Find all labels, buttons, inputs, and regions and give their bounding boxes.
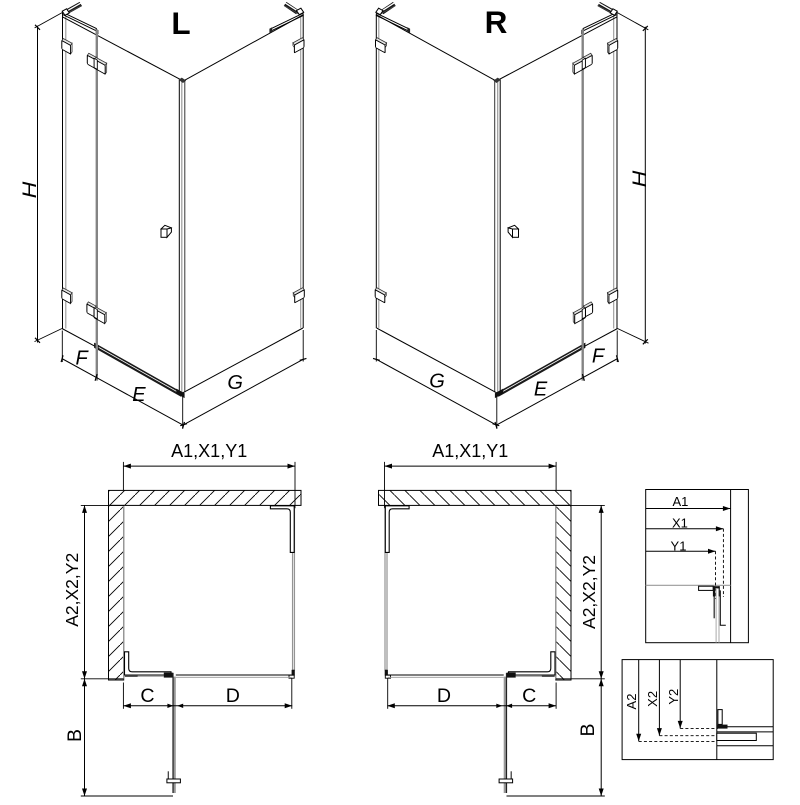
svg-text:B: B	[577, 723, 599, 736]
svg-text:A1,X1,Y1: A1,X1,Y1	[171, 441, 247, 461]
svg-text:L: L	[171, 5, 190, 41]
svg-text:D: D	[437, 685, 451, 707]
svg-text:X2: X2	[645, 691, 660, 707]
svg-text:A2,X2,Y2: A2,X2,Y2	[579, 555, 599, 629]
svg-text:A2,X2,Y2: A2,X2,Y2	[62, 553, 82, 627]
svg-text:A1: A1	[672, 494, 688, 509]
svg-text:R: R	[485, 4, 508, 40]
svg-text:B: B	[64, 729, 86, 742]
svg-text:X1: X1	[672, 516, 688, 531]
svg-text:G: G	[227, 372, 243, 394]
svg-text:G: G	[429, 371, 445, 393]
svg-text:A1,X1,Y1: A1,X1,Y1	[432, 441, 508, 461]
svg-text:Y1: Y1	[671, 538, 687, 553]
svg-text:F: F	[75, 347, 89, 369]
svg-text:E: E	[132, 384, 146, 406]
svg-text:C: C	[522, 685, 536, 707]
svg-text:D: D	[226, 685, 240, 707]
svg-text:E: E	[534, 379, 548, 401]
svg-text:F: F	[592, 346, 606, 368]
svg-text:Y2: Y2	[666, 689, 681, 705]
svg-text:C: C	[140, 685, 154, 707]
svg-text:A2: A2	[624, 694, 639, 710]
svg-text:H: H	[630, 170, 651, 187]
svg-text:H: H	[20, 181, 41, 198]
